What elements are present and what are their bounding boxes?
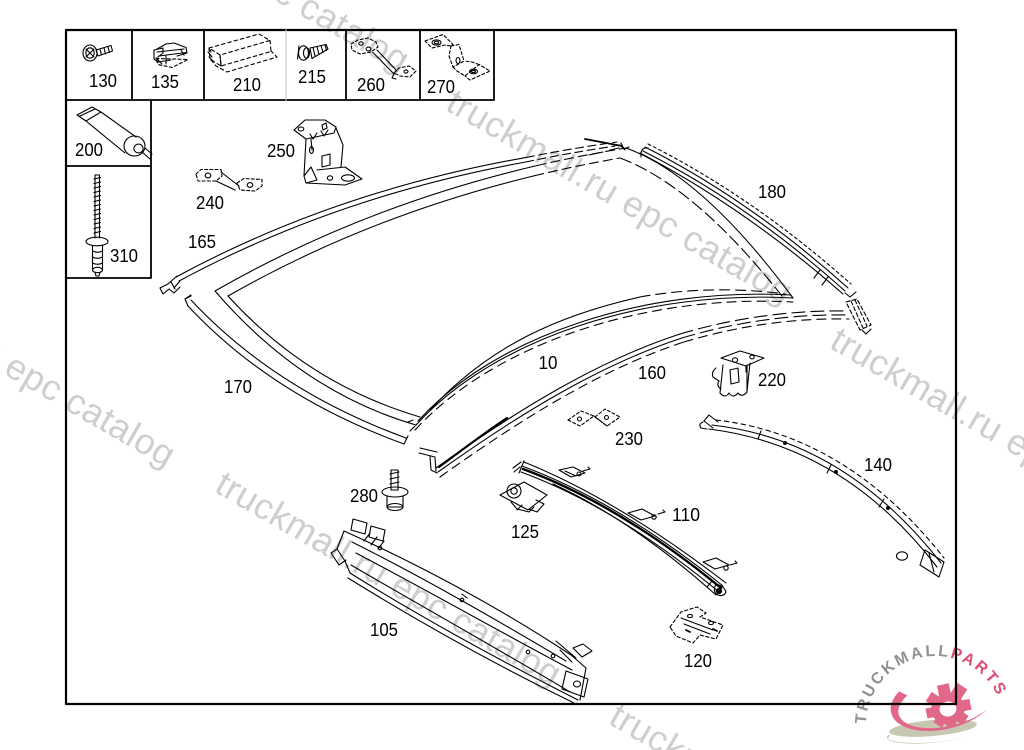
svg-text:310: 310 xyxy=(110,246,138,266)
svg-text:125: 125 xyxy=(511,522,539,542)
svg-text:210: 210 xyxy=(233,75,261,95)
svg-text:170: 170 xyxy=(224,377,252,397)
svg-text:165: 165 xyxy=(188,232,216,252)
svg-text:240: 240 xyxy=(196,193,224,213)
svg-text:200: 200 xyxy=(75,140,103,160)
svg-text:105: 105 xyxy=(370,620,398,640)
svg-text:250: 250 xyxy=(267,141,295,161)
svg-text:230: 230 xyxy=(615,429,643,449)
svg-text:260: 260 xyxy=(357,75,385,95)
svg-text:220: 220 xyxy=(758,370,786,390)
svg-text:160: 160 xyxy=(638,363,666,383)
svg-text:180: 180 xyxy=(758,182,786,202)
svg-text:280: 280 xyxy=(350,486,378,506)
svg-text:135: 135 xyxy=(151,72,179,92)
svg-text:10: 10 xyxy=(539,353,558,373)
svg-text:120: 120 xyxy=(684,651,712,671)
svg-text:130: 130 xyxy=(89,71,117,91)
svg-text:215: 215 xyxy=(298,67,326,87)
svg-text:110: 110 xyxy=(672,505,700,525)
svg-text:270: 270 xyxy=(427,77,455,97)
svg-text:140: 140 xyxy=(864,455,892,475)
